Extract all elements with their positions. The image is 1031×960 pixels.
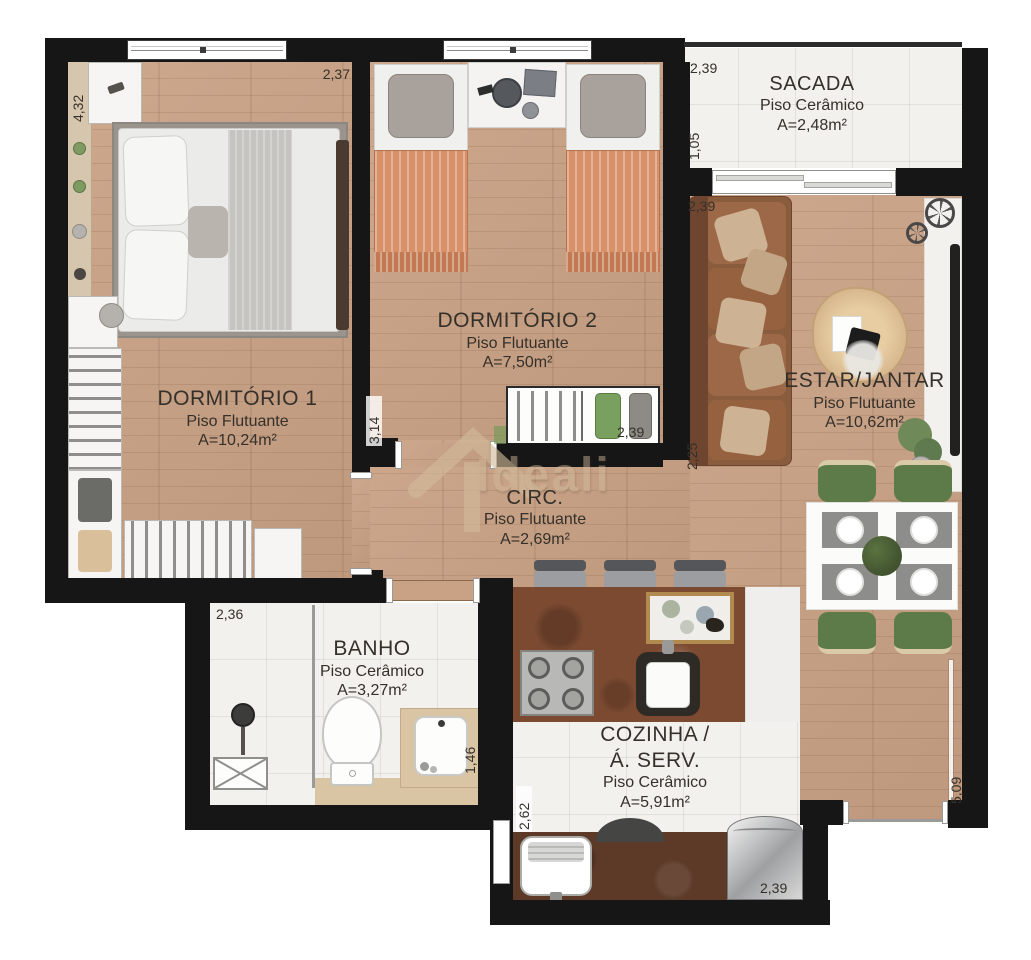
plant-icon — [73, 180, 86, 193]
door-opening-dorm2 — [398, 443, 495, 467]
room-name: Á. SERV. — [574, 748, 736, 774]
room-area: A=3,27m² — [292, 681, 452, 701]
room-name: COZINHA / — [574, 722, 736, 748]
plate — [836, 516, 864, 544]
floor-plan: Ideali DORMITÓRIO 1 Piso Flutuante A=10,… — [0, 0, 1031, 960]
label-cozinha: COZINHA / Á. SERV. Piso Cerâmico A=5,91m… — [574, 722, 736, 812]
shower-head-icon — [231, 703, 255, 727]
faucet-icon — [662, 640, 674, 654]
label-banho: BANHO Piso Cerâmico A=3,27m² — [292, 636, 452, 701]
dimension-label: 2,39 — [760, 880, 800, 896]
wall-right — [962, 48, 988, 828]
entry-jamb — [942, 801, 948, 824]
window-servico — [493, 820, 510, 884]
door-jamb — [490, 441, 497, 469]
dimension-label: 2,37 — [306, 66, 350, 82]
room-name: DORMITÓRIO 2 — [400, 308, 635, 334]
dining-chair — [894, 612, 952, 654]
clock-icon — [492, 78, 522, 108]
door-opening-dorm1 — [352, 478, 370, 570]
wall-fridge-right — [803, 825, 828, 905]
pillow — [122, 229, 189, 321]
dimension-label: 4,32 — [70, 66, 86, 122]
room-area: A=5,91m² — [574, 793, 736, 813]
throw-pillow — [714, 296, 767, 349]
room-floor-type: Piso Cerâmico — [712, 96, 912, 116]
white-cabinet-column — [745, 587, 800, 722]
door-jamb — [395, 441, 402, 469]
fridge-line — [733, 828, 797, 834]
room-name: DORMITÓRIO 1 — [120, 386, 355, 412]
dimension-label: 2,39 — [617, 424, 657, 440]
decor-tray — [646, 592, 734, 644]
door-jamb — [350, 472, 372, 479]
book-icon — [523, 69, 557, 97]
pillow — [580, 74, 646, 138]
laundry-tank-board — [528, 842, 584, 862]
toilet-flush-icon — [349, 770, 356, 777]
sink-basin — [646, 662, 690, 708]
dimension-label: 5,09 — [948, 754, 964, 804]
dimension-label: 2,36 — [216, 606, 256, 622]
dimension-label: 1,46 — [462, 730, 478, 774]
burner — [562, 688, 584, 710]
label-estar-jantar: ESTAR/JANTAR Piso Flutuante A=10,62m² — [762, 368, 967, 433]
room-name: BANHO — [292, 636, 452, 662]
dimension-label: 3,14 — [366, 396, 382, 446]
wall-dorm2-circ — [495, 443, 663, 467]
decor-icon — [522, 102, 539, 119]
centerpiece-plant — [862, 536, 902, 576]
wall-banho-bottom — [185, 805, 513, 830]
stool-icon — [99, 303, 124, 328]
dining-chair — [818, 612, 876, 654]
closet-hangers — [511, 391, 583, 441]
shower-stem — [241, 727, 245, 755]
dimension-label: 2,25 — [684, 424, 700, 470]
wall-banho-left — [185, 603, 210, 830]
bar-stool — [674, 560, 726, 571]
window-handle-icon — [510, 47, 516, 53]
room-area: A=2,69m² — [455, 530, 615, 550]
wall-sacada-estar-right — [896, 168, 962, 196]
room-area: A=7,50m² — [400, 353, 635, 373]
room-name: CIRC. — [455, 486, 615, 510]
cabinet-bottom — [254, 528, 302, 583]
plate — [910, 516, 938, 544]
wall-left — [45, 38, 68, 603]
wall-banho-cozinha — [478, 578, 513, 805]
pillow — [388, 74, 454, 138]
wall-dorm1-bottom — [45, 578, 390, 603]
tray-flower-icon — [662, 600, 680, 618]
window-dorm2 — [443, 40, 592, 60]
room-area: A=2,48m² — [712, 116, 912, 136]
room-name: SACADA — [712, 72, 912, 96]
label-circulacao: CIRC. Piso Flutuante A=2,69m² — [455, 486, 615, 549]
wheel-decor-icon — [925, 198, 955, 228]
soap-icon — [430, 766, 437, 773]
vanity-faucet-icon — [438, 720, 445, 727]
burner — [562, 657, 584, 679]
window-dorm1 — [127, 40, 287, 60]
dining-chair — [894, 460, 952, 502]
bed-bench — [336, 140, 349, 330]
door-opening-banho — [390, 580, 476, 601]
burner — [528, 657, 550, 679]
room-floor-type: Piso Flutuante — [400, 334, 635, 354]
bed-blanket — [228, 130, 292, 330]
tray-flower-icon — [680, 620, 694, 634]
label-dormitorio1: DORMITÓRIO 1 Piso Flutuante A=10,24m² — [120, 386, 355, 451]
dining-chair — [818, 460, 876, 502]
folded-clothes-dark — [78, 478, 112, 522]
room-floor-type: Piso Cerâmico — [292, 662, 452, 682]
sacada-railing — [684, 42, 962, 47]
room-floor-type: Piso Cerâmico — [574, 773, 736, 793]
room-area: A=10,24m² — [120, 431, 355, 451]
blanket-band — [374, 252, 468, 272]
burner — [528, 688, 550, 710]
decor-icon — [72, 224, 87, 239]
label-dormitorio2: DORMITÓRIO 2 Piso Flutuante A=7,50m² — [400, 308, 635, 373]
dimension-label: 1,05 — [686, 116, 702, 160]
wardrobe-left — [68, 348, 122, 470]
blanket-band — [566, 252, 660, 272]
pillow — [122, 135, 189, 227]
door-jamb — [473, 578, 480, 603]
room-floor-type: Piso Flutuante — [120, 412, 355, 432]
door-jamb — [350, 568, 372, 575]
label-sacada: SACADA Piso Cerâmico A=2,48m² — [712, 72, 912, 135]
room-floor-type: Piso Flutuante — [455, 510, 615, 530]
folded-clothes-beige — [78, 530, 112, 572]
window-handle-icon — [200, 47, 206, 53]
room-name: ESTAR/JANTAR — [762, 368, 967, 394]
wardrobe-bottom — [124, 520, 252, 583]
dimension-label: 2,39 — [690, 60, 730, 76]
small-pillow — [188, 206, 228, 258]
wall-cozinha-bottom — [490, 900, 830, 925]
plate — [910, 568, 938, 596]
toilet-bowl — [322, 696, 382, 770]
bar-stool — [534, 560, 586, 571]
door-jamb — [386, 578, 393, 603]
plate — [836, 568, 864, 596]
wheel-decor-icon — [906, 222, 928, 244]
room-area: A=10,62m² — [762, 413, 967, 433]
decor-icon — [74, 268, 86, 280]
plant-icon — [73, 142, 86, 155]
entry-threshold — [849, 819, 942, 822]
wall-dining-bottom-stub — [800, 800, 843, 825]
corner-cabinet — [88, 62, 142, 124]
tray-decor-dark-icon — [706, 618, 724, 632]
sliding-door-pane — [804, 182, 892, 188]
sliding-door-pane — [716, 175, 804, 181]
dimension-label: 2,62 — [516, 786, 532, 832]
shower-tray-x-icon — [213, 757, 268, 790]
soap-icon — [420, 762, 429, 771]
dimension-label: 2,39 — [688, 198, 728, 214]
room-floor-type: Piso Flutuante — [762, 394, 967, 414]
bar-stool — [604, 560, 656, 571]
